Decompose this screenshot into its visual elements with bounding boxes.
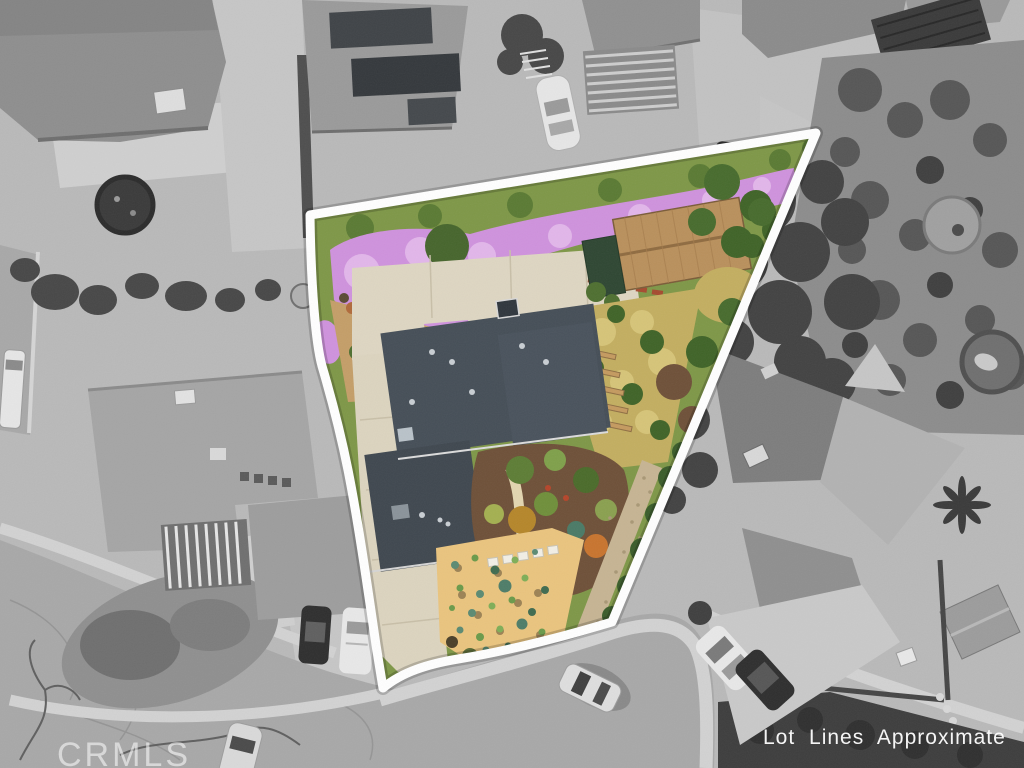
film-grain bbox=[0, 0, 1024, 768]
aerial-scene: CRMLS Lot Lines Approximate bbox=[0, 0, 1024, 768]
crmls-watermark: CRMLS bbox=[57, 736, 191, 768]
aerial-property-photo: CRMLS Lot Lines Approximate bbox=[0, 0, 1024, 768]
lot-lines-disclaimer: Lot Lines Approximate bbox=[763, 726, 1006, 749]
